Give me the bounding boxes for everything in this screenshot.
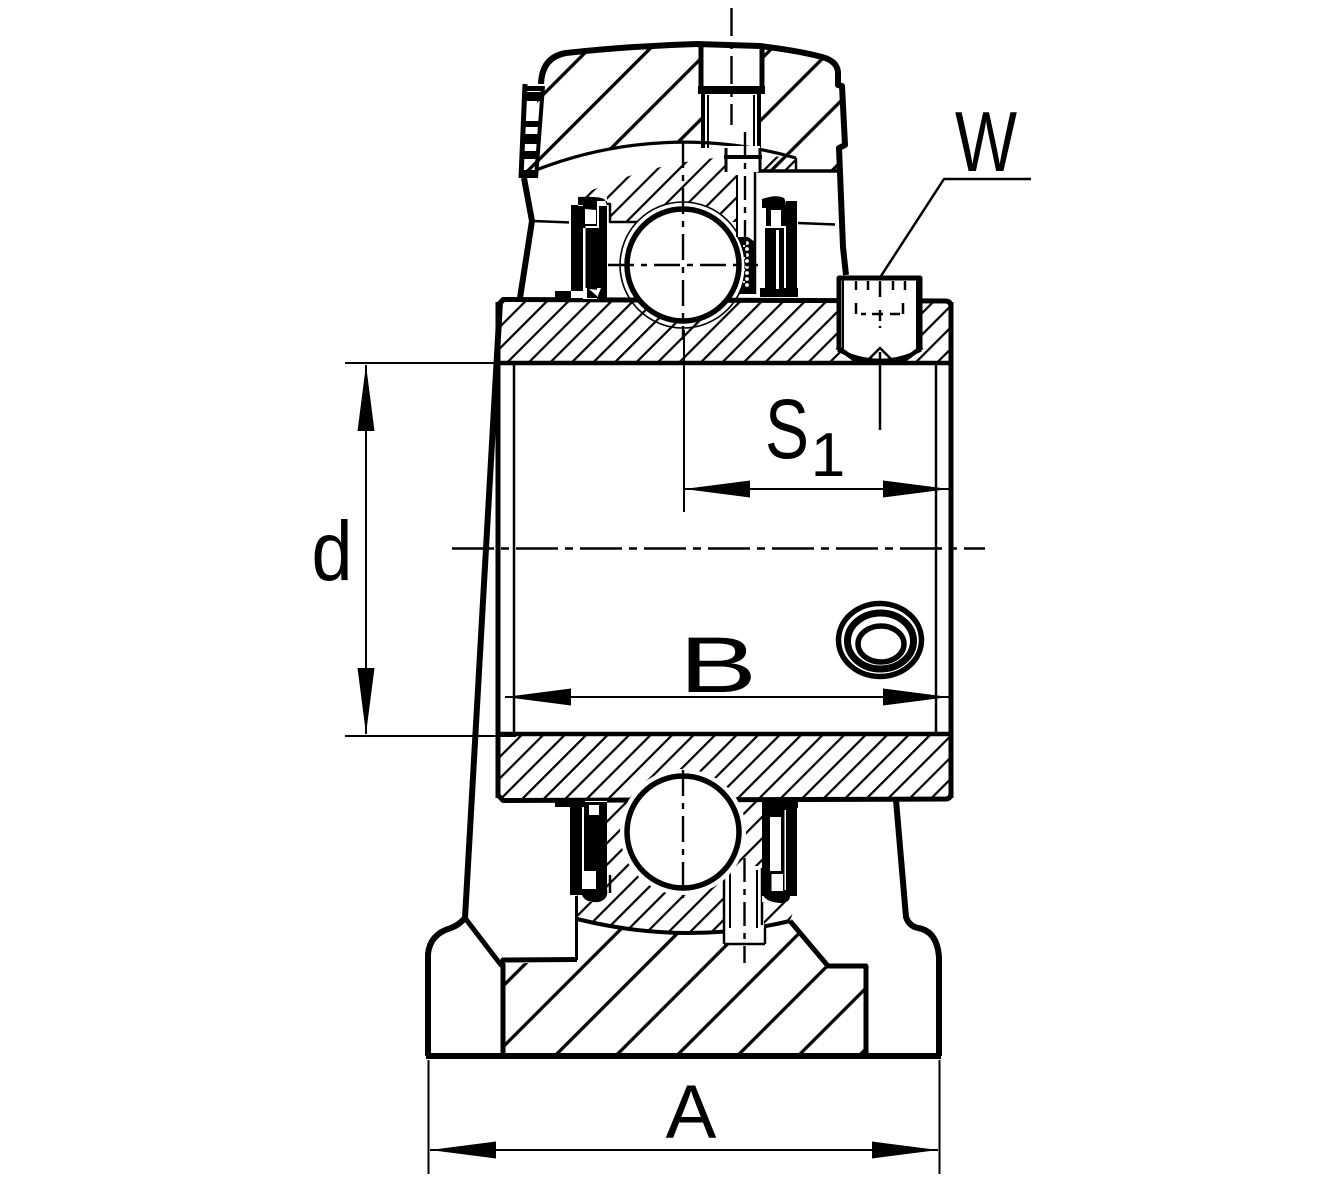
svg-text:A: A [666, 1070, 717, 1155]
svg-text:W: W [955, 95, 1017, 190]
svg-text:d: d [312, 504, 353, 598]
svg-text:S: S [765, 382, 809, 476]
svg-text:B: B [679, 620, 757, 709]
svg-text:1: 1 [811, 421, 845, 490]
